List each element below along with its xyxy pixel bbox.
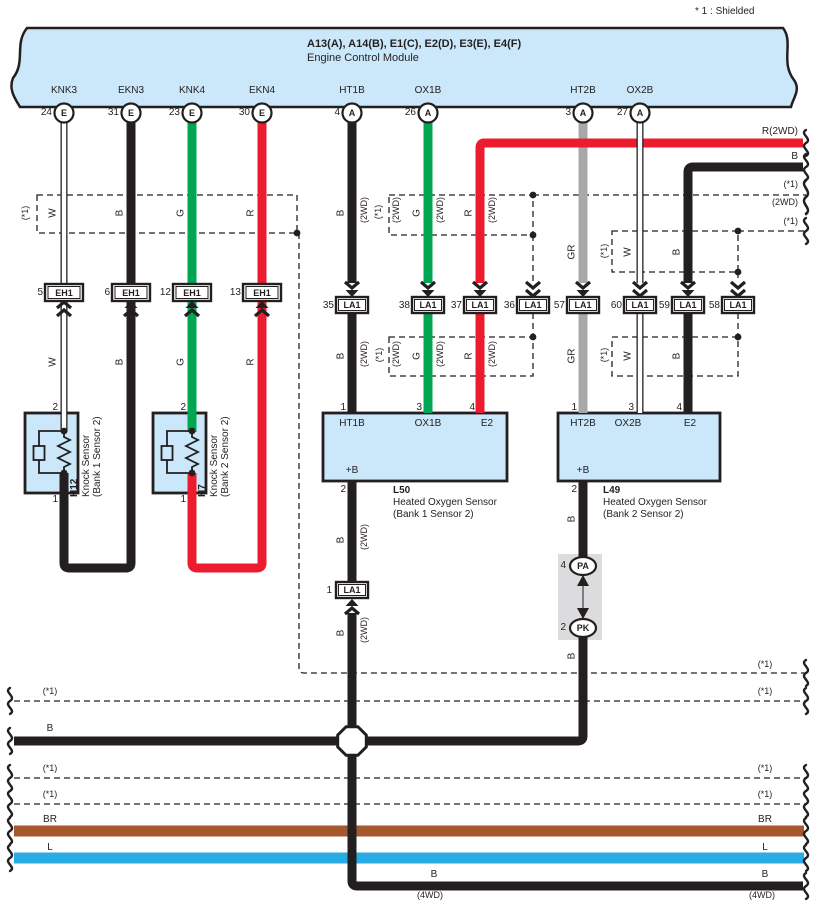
- h12-bank: (Bank 1 Sensor 2): [92, 416, 103, 497]
- ecm-pin-4: 4: [318, 107, 340, 118]
- h7-id: H7: [197, 484, 208, 497]
- la1-connector: LA1: [574, 300, 591, 310]
- wire-label-2wd: (2WD): [359, 197, 369, 223]
- wire-label-br: BR: [43, 814, 57, 825]
- shield-label: (*1): [718, 216, 798, 226]
- wire-label-b: B: [431, 869, 438, 880]
- shield-2wd-label: (2WD): [391, 341, 401, 367]
- shield-label: (*1): [374, 348, 384, 363]
- h7-bank: (Bank 2 Sensor 2): [220, 416, 231, 497]
- l49-pin-4: 4: [662, 402, 682, 413]
- wire-label-2wd: (2WD): [487, 341, 497, 367]
- l50-terminal-plusb: +B: [346, 465, 359, 476]
- wire-label-b: B: [115, 210, 126, 217]
- wire-label-b: B: [718, 151, 798, 162]
- la1-connector: LA1: [729, 300, 746, 310]
- wire-label-b: B: [336, 353, 347, 360]
- pa-pin-4: 4: [544, 560, 566, 571]
- shield-label: (*1): [373, 205, 383, 220]
- ecm-pin-24: 24: [30, 107, 52, 118]
- l50-pin-1: 1: [326, 402, 346, 413]
- pin-code-a4: A: [637, 108, 644, 118]
- wire-label-2wd: (2WD): [359, 617, 369, 643]
- wire-label-b: B: [115, 359, 126, 366]
- pin-code-e1: E: [61, 108, 67, 118]
- l50-terminal-ox1b: OX1B: [415, 418, 442, 429]
- model-2wd-label: (2WD): [718, 197, 798, 207]
- wire-label-g: G: [412, 352, 423, 360]
- shield-label: (*1): [599, 244, 609, 259]
- wire-label-b: B: [47, 723, 54, 734]
- wire-pk-to-splice: [364, 636, 583, 741]
- model-4wd-label: (4WD): [417, 890, 443, 900]
- wire-label-w: W: [623, 351, 634, 360]
- h12-name: Knock Sensor: [81, 435, 92, 497]
- wire-label-b: B: [336, 210, 347, 217]
- l50-pin-2: 2: [326, 484, 346, 495]
- ecm-pin-27: 27: [606, 107, 628, 118]
- h7-pin-1: 1: [166, 494, 186, 505]
- la1-connector: LA1: [631, 300, 648, 310]
- diagram-canvas: [0, 0, 818, 905]
- wire-label-r: R: [464, 352, 475, 359]
- shield-label: (*1): [599, 348, 609, 363]
- ecm-pin-31: 31: [97, 107, 119, 118]
- ecm-terminal-ox1b: OX1B: [415, 85, 442, 96]
- ecm-terminal-ox2b: OX2B: [627, 85, 654, 96]
- la1-pin-58: 58: [696, 300, 720, 311]
- h7-name: Knock Sensor: [209, 435, 220, 497]
- l50-pin-3: 3: [402, 402, 422, 413]
- eh1-pin-6: 6: [86, 287, 110, 298]
- l50-pin-4: 4: [455, 402, 475, 413]
- shield-label: (*1): [758, 763, 773, 773]
- la1-pin-36: 36: [491, 300, 515, 311]
- l49-terminal-ox2b: OX2B: [615, 418, 642, 429]
- la1-connector: LA1: [679, 300, 696, 310]
- splice-junction: [338, 727, 367, 756]
- eh1-connector: EH1: [122, 288, 140, 298]
- la1-pin-59: 59: [646, 300, 670, 311]
- pin-code-e4: E: [259, 108, 265, 118]
- shield-label: (*1): [43, 789, 58, 799]
- la1-pin-60: 60: [598, 300, 622, 311]
- ecm-terminal-ekn4: EKN4: [249, 85, 275, 96]
- h12-pin-1: 1: [38, 494, 58, 505]
- model-4wd-label: (4WD): [749, 890, 775, 900]
- l50-bank: (Bank 1 Sensor 2): [393, 509, 474, 520]
- wire-label-w: W: [623, 247, 634, 256]
- l50-name: Heated Oxygen Sensor: [393, 497, 497, 508]
- la1-pin-57: 57: [541, 300, 565, 311]
- wire-label-b: B: [567, 653, 578, 660]
- shield-2wd-label: (2WD): [391, 197, 401, 223]
- ecm-pin-3: 3: [549, 107, 571, 118]
- wire-label-2wd: (2WD): [435, 341, 445, 367]
- h12-pin-2: 2: [38, 402, 58, 413]
- ecm-title: A13(A), A14(B), E1(C), E2(D), E3(E), E4(…: [307, 38, 521, 50]
- eh1-connector: EH1: [183, 288, 201, 298]
- wire-label-w: W: [48, 357, 59, 366]
- shield-label: (*1): [718, 179, 798, 189]
- eh1-pin-5: 5: [19, 287, 43, 298]
- l49-pin-3: 3: [614, 402, 634, 413]
- pa-connector: PA: [577, 561, 589, 571]
- shielded-note: * 1 : Shielded: [695, 6, 805, 17]
- wire-label-r: R: [464, 209, 475, 216]
- wire-label-2wd: (2WD): [435, 197, 445, 223]
- eh1-connector: EH1: [253, 288, 271, 298]
- wire-label-g: G: [176, 358, 187, 366]
- l49-terminal-plusb: +B: [577, 465, 590, 476]
- l49-pin-2: 2: [557, 484, 577, 495]
- h7-pin-2: 2: [166, 402, 186, 413]
- shield-label: (*1): [758, 789, 773, 799]
- l49-terminal-ht2b: HT2B: [570, 418, 596, 429]
- shield-label: (*1): [758, 686, 773, 696]
- wire-label-g: G: [412, 209, 423, 217]
- ecm-terminal-knk4: KNK4: [179, 85, 205, 96]
- la1b-pin-1: 1: [310, 585, 332, 596]
- pin-code-a3: A: [580, 108, 587, 118]
- wire-label-r: R: [246, 358, 257, 365]
- ecm-pin-26: 26: [394, 107, 416, 118]
- ecm-pin-30: 30: [228, 107, 250, 118]
- wire-label-r: R: [246, 209, 257, 216]
- pin-code-e2: E: [128, 108, 134, 118]
- pin-code-a2: A: [425, 108, 432, 118]
- ecm-terminal-ekn3: EKN3: [118, 85, 144, 96]
- wire-b-4wd: [352, 754, 803, 886]
- wire-label-l: L: [762, 842, 768, 853]
- ecm-subtitle: Engine Control Module: [307, 52, 419, 64]
- wire-label-gr: GR: [567, 349, 578, 364]
- l49-name: Heated Oxygen Sensor: [603, 497, 707, 508]
- l50-id: L50: [393, 485, 410, 496]
- l49-terminal-e2: E2: [684, 418, 696, 429]
- wire-label-2wd: (2WD): [487, 197, 497, 223]
- l50-terminal-e2: E2: [481, 418, 493, 429]
- pk-pin-2: 2: [544, 622, 566, 633]
- shield-label: (*1): [43, 763, 58, 773]
- pk-connector: PK: [577, 623, 590, 633]
- la1-connector: LA1: [343, 585, 360, 595]
- h12-id: H12: [69, 479, 80, 497]
- ecm-terminal-knk3: KNK3: [51, 85, 77, 96]
- l49-pin-1: 1: [557, 402, 577, 413]
- wire-label-l: L: [47, 842, 53, 853]
- shield-label: (*1): [758, 659, 773, 669]
- shield-label: (*1): [20, 206, 30, 221]
- wire-label-r2wd: R(2WD): [718, 126, 798, 137]
- wire-label-b: B: [762, 869, 769, 880]
- wire-label-b: B: [672, 249, 683, 256]
- wire-label-b: B: [567, 516, 578, 523]
- wire-label-br: BR: [758, 814, 772, 825]
- ecm-terminal-ht1b: HT1B: [339, 85, 365, 96]
- l49-id: L49: [603, 485, 620, 496]
- wire-label-2wd: (2WD): [359, 524, 369, 550]
- la1-connector: LA1: [471, 300, 488, 310]
- wiring-diagram: * 1 : Shielded A13(A), A14(B), E1(C), E2…: [0, 0, 818, 905]
- ecm-pin-23: 23: [158, 107, 180, 118]
- la1-pin-37: 37: [438, 300, 462, 311]
- l49-bank: (Bank 2 Sensor 2): [603, 509, 684, 520]
- pin-code-e3: E: [189, 108, 195, 118]
- la1-connector: LA1: [524, 300, 541, 310]
- la1-connector: LA1: [343, 300, 360, 310]
- wire-label-gr: GR: [567, 245, 578, 260]
- wire-label-g: G: [176, 209, 187, 217]
- la1-pin-35: 35: [310, 300, 334, 311]
- l50-terminal-ht1b: HT1B: [339, 418, 365, 429]
- wire-label-b: B: [336, 537, 347, 544]
- eh1-connector: EH1: [55, 288, 73, 298]
- wire-label-b: B: [672, 353, 683, 360]
- eh1-pin-12: 12: [147, 287, 171, 298]
- wire-label-b: B: [336, 630, 347, 637]
- wire-label-2wd: (2WD): [359, 341, 369, 367]
- shield-label: (*1): [43, 686, 58, 696]
- wire-label-w: W: [48, 208, 59, 217]
- ecm-terminal-ht2b: HT2B: [570, 85, 596, 96]
- eh1-pin-13: 13: [217, 287, 241, 298]
- pin-code-a1: A: [349, 108, 356, 118]
- la1-connector: LA1: [419, 300, 436, 310]
- la1-pin-38: 38: [386, 300, 410, 311]
